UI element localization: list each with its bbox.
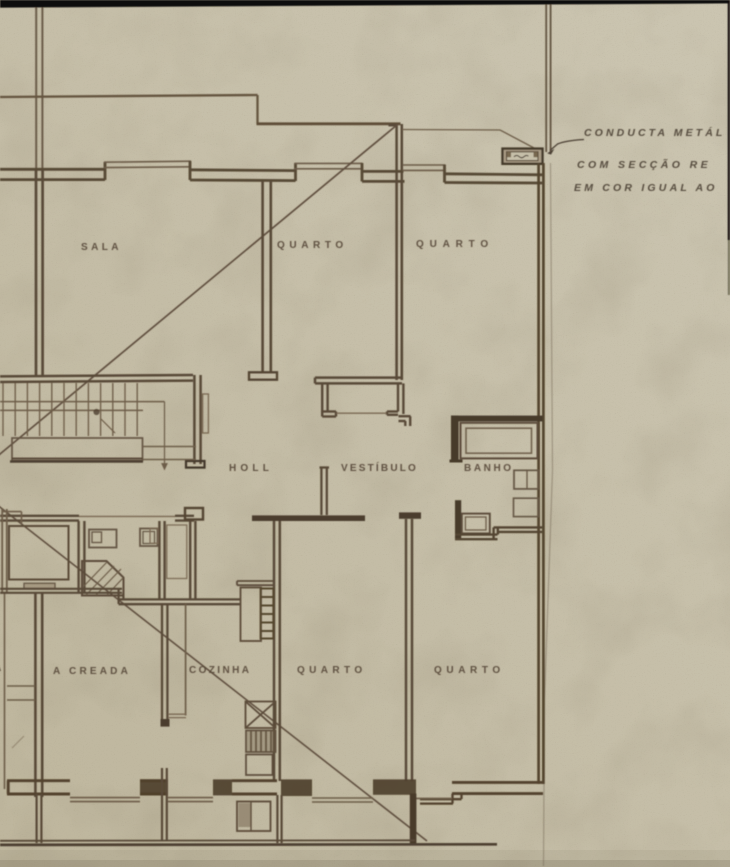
svg-text:HOLL: HOLL <box>229 463 273 474</box>
svg-text:BANHO: BANHO <box>464 463 514 474</box>
svg-text:COZINHA: COZINHA <box>189 665 251 676</box>
svg-text:EM COR IGUAL AO: EM COR IGUAL AO <box>574 182 718 194</box>
svg-text:VESTÍBULO: VESTÍBULO <box>341 461 418 474</box>
svg-text:QUARTO: QUARTO <box>277 240 348 251</box>
svg-text:CONDUCTA METÁL: CONDUCTA METÁL <box>584 126 725 139</box>
svg-text:A: A <box>0 663 3 674</box>
svg-text:SALA: SALA <box>81 242 122 253</box>
svg-text:QUARTO: QUARTO <box>416 239 494 250</box>
svg-text:QUARTO: QUARTO <box>297 665 367 676</box>
svg-text:A CREADA: A CREADA <box>53 666 131 677</box>
svg-text:COM SECÇÃO RE: COM SECÇÃO RE <box>577 158 711 171</box>
svg-text:QUARTO: QUARTO <box>434 665 505 676</box>
